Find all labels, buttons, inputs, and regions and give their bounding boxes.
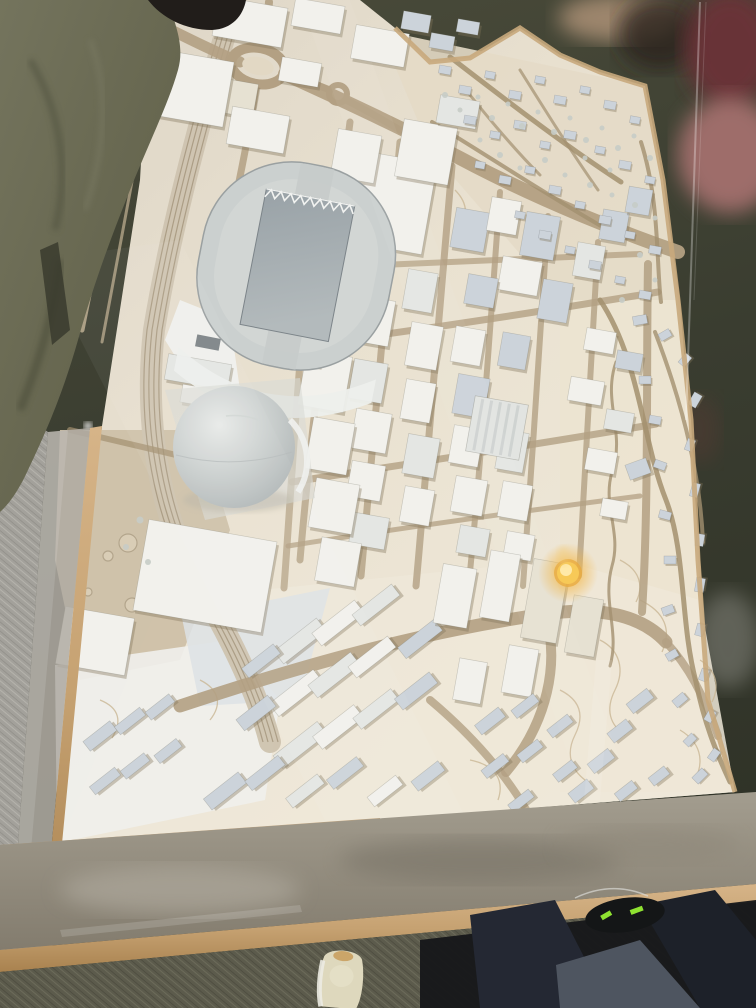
photo-city-scale-model — [0, 0, 756, 1008]
cream-sneaker — [317, 949, 365, 1008]
